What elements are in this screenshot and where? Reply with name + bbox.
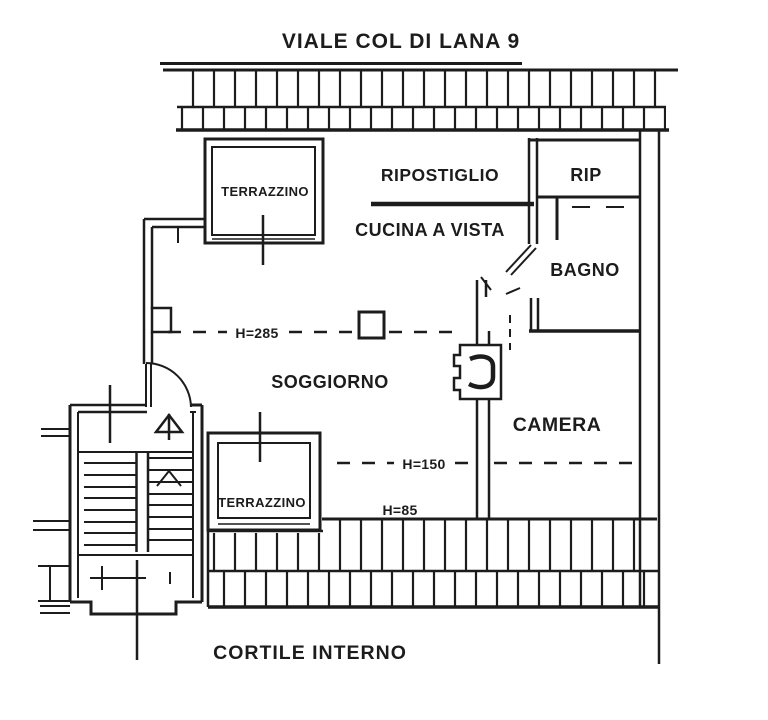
terrazzino-top-box (205, 139, 323, 265)
room-label-bagno: BAGNO (550, 260, 620, 280)
stair-steps-right (148, 458, 193, 540)
room-label-soggiorno: SOGGIORNO (271, 372, 389, 392)
rip-room-walls (529, 138, 640, 244)
height-label-h150: H=150 (402, 456, 445, 472)
courtyard-label: CORTILE INTERNO (213, 642, 407, 664)
room-label-cucina: CUCINA A VISTA (355, 220, 505, 240)
wall-pillar (152, 308, 171, 332)
floor-plan-page: VIALE COL DI LANA 9 TERRAZZINO R (0, 0, 768, 720)
stair-steps-left (84, 463, 136, 545)
stair-direction-chevron (157, 471, 181, 486)
stair-side-windows (33, 429, 70, 613)
height-line-h285 (168, 312, 456, 338)
column-marker (359, 312, 384, 338)
height-label-h85: H=85 (382, 502, 417, 518)
room-label-terrazzino-bottom: TERRAZZINO (218, 495, 306, 510)
room-label-camera: CAMERA (513, 414, 602, 436)
flue-fixture (454, 345, 501, 399)
room-label-ripostiglio: RIPOSTIGLIO (381, 165, 499, 185)
entry-door (146, 363, 191, 407)
room-label-terrazzino-top: TERRAZZINO (221, 184, 309, 199)
street-title: VIALE COL DI LANA 9 (282, 30, 520, 53)
height-label-h285: H=285 (235, 325, 278, 341)
room-label-rip: RIP (570, 165, 602, 185)
floor-plan-canvas: VIALE COL DI LANA 9 TERRAZZINO R (0, 0, 768, 720)
entry-door-swing-arc (146, 363, 191, 407)
terrazzino-bottom-box (208, 412, 320, 530)
door-swing-dash (506, 288, 520, 294)
left-upper-wall (144, 219, 205, 364)
bottom-exterior-wall-hatch (208, 519, 658, 607)
staircase (33, 385, 202, 660)
top-exterior-wall-hatch (160, 64, 678, 131)
